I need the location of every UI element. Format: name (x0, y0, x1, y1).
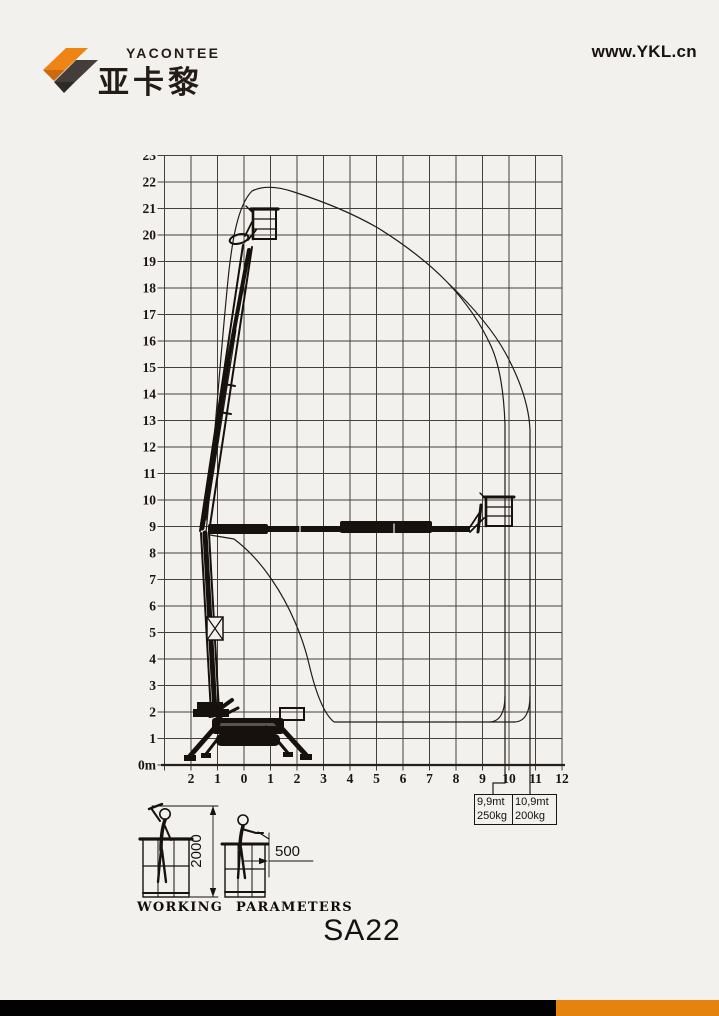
y-tick-label: 10 (143, 493, 157, 508)
y-tick-label: 12 (143, 440, 157, 455)
y-tick-label: 0m (138, 758, 157, 773)
outreach-callout-250kg: 9,9mt 250kg (474, 794, 513, 825)
x-tick-label: 12 (555, 771, 569, 786)
x-tick-label: 9 (479, 771, 486, 786)
y-tick-label: 6 (149, 599, 156, 614)
page: YACONTEE 亚卡黎 www.YKL.cn 23 22 21 20 19 1… (0, 0, 719, 1016)
horizontal-boom (208, 505, 484, 534)
y-tick-label: 9 (149, 519, 156, 534)
x-tick-label: 2 (294, 771, 301, 786)
x-tick-label: 11 (529, 771, 542, 786)
outreach-value: 10,9mt (515, 796, 555, 810)
y-tick-label: 8 (149, 546, 156, 561)
footer-bar-orange (556, 1000, 719, 1016)
x-tick-label: 2 (188, 771, 195, 786)
x-tick-label: 1 (267, 771, 274, 786)
y-tick-label: 2 (149, 705, 156, 720)
reach-dimension-label: 500 (275, 843, 300, 860)
figure-basket-height: 2000 (140, 804, 218, 897)
y-tick-label: 1 (149, 731, 156, 746)
y-tick-label: 18 (143, 281, 157, 296)
y-tick-label: 21 (143, 201, 157, 216)
chart-grid (158, 156, 563, 771)
y-tick-label: 19 (143, 254, 157, 269)
x-tick-label: 0 (241, 771, 248, 786)
x-tick-label: 7 (426, 771, 433, 786)
figure-basket-reach: 500 (222, 815, 313, 897)
chassis (193, 702, 304, 746)
y-tick-label: 5 (149, 625, 156, 640)
working-parameters-caption: WORKING PARAMETERS (137, 900, 353, 915)
y-tick-label: 16 (143, 334, 157, 349)
capacity-value: 250kg (477, 810, 511, 824)
envelope-curve (206, 187, 530, 795)
outreach-callout-200kg: 10,9mt 200kg (512, 794, 557, 825)
y-axis-labels: 23 22 21 20 19 18 17 16 15 14 13 12 11 1… (138, 148, 157, 773)
y-tick-label: 3 (149, 678, 156, 693)
x-tick-label: 1 (214, 771, 221, 786)
footer-bar-black (0, 1000, 556, 1016)
y-tick-label: 7 (149, 572, 156, 587)
x-tick-label: 5 (373, 771, 380, 786)
x-tick-label: 3 (320, 771, 327, 786)
outreach-value: 9,9mt (477, 796, 511, 810)
y-tick-label: 4 (149, 652, 156, 667)
x-tick-label: 8 (453, 771, 460, 786)
working-parameter-figures: 2000 500 (140, 804, 313, 897)
x-tick-label: 10 (502, 771, 516, 786)
lower-boom (201, 533, 238, 720)
y-tick-label: 20 (143, 228, 157, 243)
x-tick-label: 6 (400, 771, 407, 786)
y-tick-label: 14 (143, 387, 157, 402)
y-tick-label: 17 (143, 307, 157, 322)
y-tick-label: 11 (143, 466, 156, 481)
height-dimension-label: 2000 (188, 834, 205, 867)
top-label-clip (128, 142, 164, 155)
x-tick-label: 4 (347, 771, 354, 786)
y-tick-label: 15 (143, 360, 157, 375)
y-tick-label: 22 (143, 175, 157, 190)
capacity-value: 200kg (515, 810, 555, 824)
machine-drawing (184, 206, 514, 761)
x-axis-labels: 2 1 0 1 2 3 4 5 6 7 8 9 10 11 12 (188, 771, 569, 786)
working-envelope-diagram: 23 22 21 20 19 18 17 16 15 14 13 12 11 1… (0, 0, 719, 1016)
model-name: SA22 (299, 914, 425, 948)
y-tick-label: 13 (143, 413, 157, 428)
